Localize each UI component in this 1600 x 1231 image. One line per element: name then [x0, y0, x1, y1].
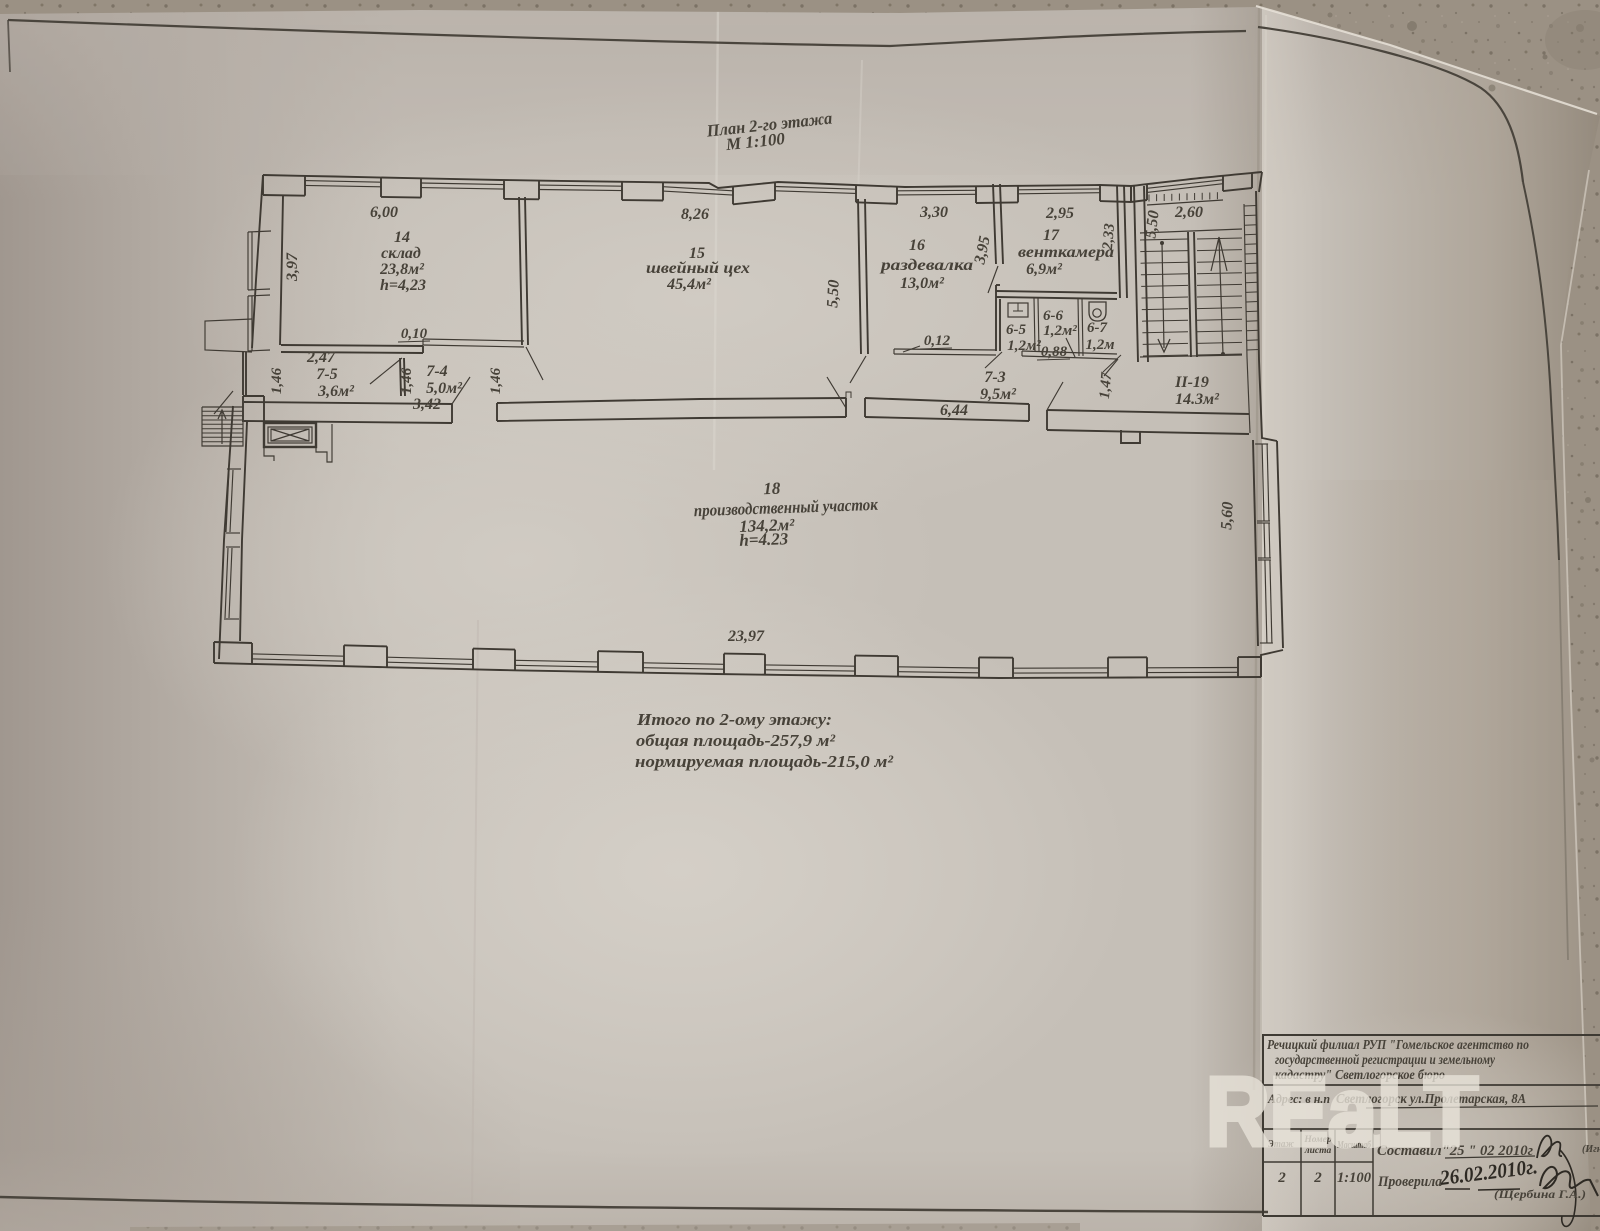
svg-text:швейный цех: швейный цех — [646, 260, 750, 277]
svg-text:(Щербина Г.А.): (Щербина Г.А.) — [1494, 1187, 1586, 1201]
svg-text:1,46: 1,46 — [269, 367, 285, 394]
svg-text:6,44: 6,44 — [940, 402, 968, 419]
svg-text:8,26: 8,26 — [681, 206, 709, 223]
svg-text:Итого по 2-ому этажу:: Итого по 2-ому этажу: — [636, 710, 832, 729]
svg-text:5,50: 5,50 — [824, 279, 842, 308]
svg-text:7-3: 7-3 — [984, 369, 1005, 386]
svg-text:14: 14 — [394, 229, 410, 246]
svg-text:6,9м²: 6,9м² — [1026, 261, 1063, 278]
svg-text:II-19: II-19 — [1174, 374, 1209, 391]
svg-text:3,30: 3,30 — [919, 204, 948, 221]
svg-text:6-7: 6-7 — [1087, 320, 1107, 336]
svg-text:1,2м²: 1,2м² — [1007, 338, 1041, 354]
svg-text:7-4: 7-4 — [426, 363, 447, 380]
svg-text:6,00: 6,00 — [370, 204, 398, 221]
svg-text:1,2м²: 1,2м² — [1043, 323, 1077, 339]
svg-text:3,42: 3,42 — [412, 396, 441, 413]
svg-text:2,95: 2,95 — [1045, 205, 1074, 222]
svg-text:5,50: 5,50 — [1142, 210, 1162, 240]
svg-text:2,60: 2,60 — [1174, 204, 1203, 221]
svg-text:нормируемая площадь-215,0 м²: нормируемая площадь-215,0 м² — [635, 752, 894, 771]
svg-text:5,60: 5,60 — [1218, 501, 1236, 530]
svg-text:3,97: 3,97 — [284, 252, 301, 282]
svg-text:6-5: 6-5 — [1006, 322, 1026, 338]
svg-text:1:100: 1:100 — [1337, 1170, 1371, 1186]
svg-text:h=4.23: h=4.23 — [739, 529, 789, 550]
svg-text:раздевалка: раздевалка — [879, 257, 973, 274]
svg-text:23,97: 23,97 — [727, 628, 765, 645]
svg-text:13,0м²: 13,0м² — [900, 275, 945, 292]
svg-text:2,33: 2,33 — [1100, 222, 1118, 251]
svg-text:23,8м²: 23,8м² — [379, 261, 425, 278]
svg-text:2: 2 — [1277, 1170, 1286, 1186]
svg-text:16: 16 — [909, 237, 925, 254]
svg-text:3,6м²: 3,6м² — [317, 383, 355, 400]
svg-text:5,0м²: 5,0м² — [426, 380, 463, 397]
svg-text:2: 2 — [1313, 1170, 1322, 1186]
svg-text:общая площадь-257,9 м²: общая площадь-257,9 м² — [636, 731, 836, 750]
svg-text:7-5: 7-5 — [316, 366, 337, 383]
svg-text:1,47: 1,47 — [1097, 371, 1115, 399]
svg-text:2,47: 2,47 — [306, 349, 336, 366]
svg-text:0,10: 0,10 — [401, 326, 428, 342]
svg-text:6-6: 6-6 — [1043, 308, 1063, 324]
svg-text:17: 17 — [1043, 227, 1060, 244]
svg-text:Проверила: Проверила — [1377, 1174, 1442, 1190]
svg-text:Речицкий филиал РУП "Гомельско: Речицкий филиал РУП "Гомельское агентств… — [1267, 1037, 1529, 1052]
svg-text:0,88: 0,88 — [1041, 344, 1068, 360]
svg-text:1,2м: 1,2м — [1085, 337, 1114, 353]
svg-text:45,4м²: 45,4м² — [666, 276, 712, 293]
svg-text:REaLT: REaLT — [1206, 1057, 1478, 1166]
svg-text:1,46: 1,46 — [399, 367, 415, 394]
svg-text:18: 18 — [763, 479, 781, 499]
svg-text:9,5м²: 9,5м² — [980, 386, 1017, 403]
svg-text:1,46: 1,46 — [488, 367, 504, 394]
svg-text:(Игнатов: (Игнатов — [1582, 1144, 1600, 1155]
svg-text:14.3м²: 14.3м² — [1175, 391, 1220, 408]
svg-text:h=4,23: h=4,23 — [380, 277, 426, 294]
svg-text:склад: склад — [381, 245, 421, 262]
svg-text:0,12: 0,12 — [924, 333, 951, 349]
